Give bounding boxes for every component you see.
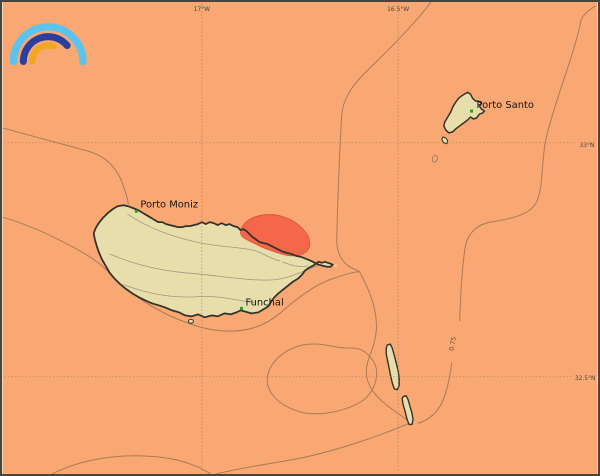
- tick-label-32-5n: 32.5°N: [575, 375, 596, 382]
- map-canvas: 17°W 16.5°W 33°N 32.5°N 0.75 Porto Moniz…: [2, 2, 598, 474]
- map-frame: 17°W 16.5°W 33°N 32.5°N 0.75 Porto Moniz…: [0, 0, 600, 476]
- funchal-label: Funchal: [245, 297, 283, 308]
- east-islet: [335, 265, 337, 267]
- porto-moniz-label: Porto Moniz: [140, 199, 198, 210]
- porto-santo-marker[interactable]: [470, 110, 473, 113]
- funchal-marker[interactable]: [240, 307, 243, 310]
- tick-label-17w: 17°W: [194, 6, 211, 13]
- tick-label-16-5w: 16.5°W: [387, 6, 409, 13]
- porto-santo-label: Porto Santo: [477, 100, 534, 111]
- tick-label-33n: 33°N: [580, 142, 595, 149]
- porto-moniz-marker[interactable]: [135, 210, 138, 213]
